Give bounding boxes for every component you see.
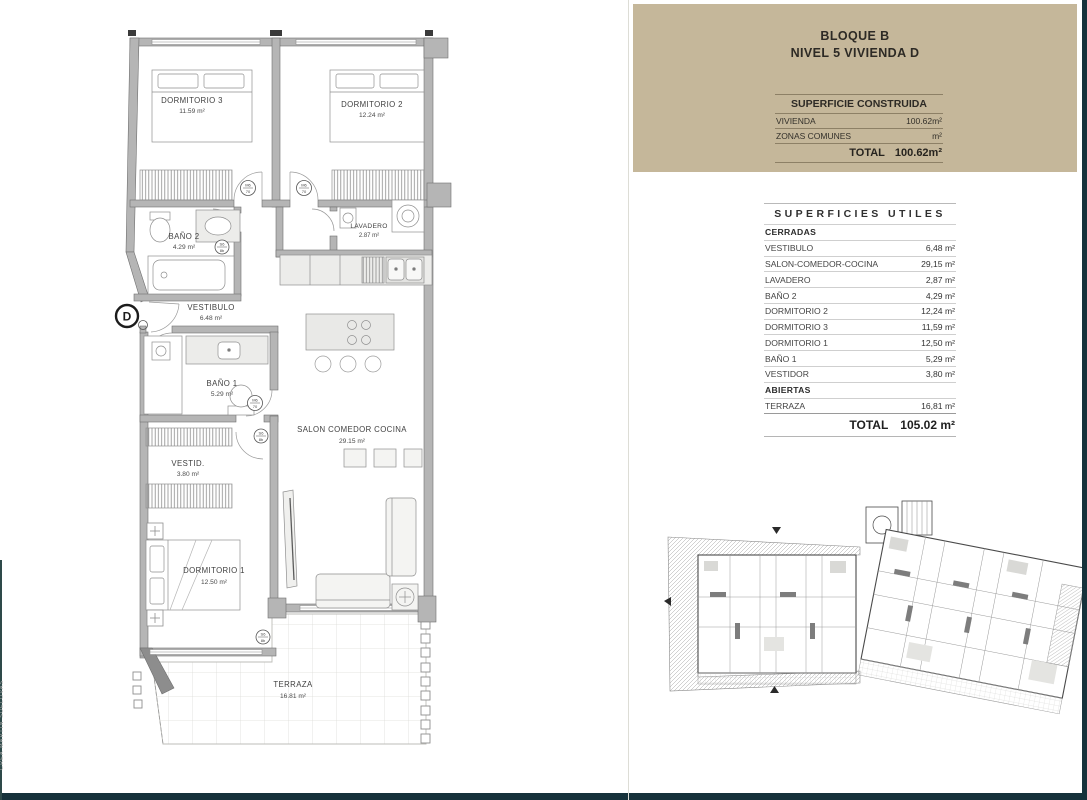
title-panel: BLOQUE B NIVEL 5 VIVIENDA D SUPERFICIE C… — [633, 4, 1077, 172]
room-area-bano1: 5.29 m² — [211, 391, 234, 398]
key-plan-left-building — [664, 527, 860, 693]
su-title: SUPERFICIES UTILES — [764, 203, 956, 224]
sc-row-value: 100.62m² — [906, 116, 942, 126]
door-tag: 70 — [253, 404, 258, 409]
room-area-dormitorio2: 12.24 m² — [359, 112, 386, 119]
key-plan — [660, 497, 1082, 725]
table-row: TERRAZA 16,81 m² — [764, 398, 956, 414]
su-total-value: 105.02 m² — [900, 418, 955, 432]
plan-title-line2: NIVEL 5 VIVIENDA D — [633, 45, 1077, 62]
su-row-label: BAÑO 2 — [765, 291, 797, 301]
room-label-terraza: TERRAZA — [273, 680, 313, 689]
su-row-value: 11,59 m² — [922, 322, 955, 332]
su-row-value: 2,87 m² — [926, 275, 955, 285]
superficies-utiles-table: SUPERFICIES UTILES CERRADAS VESTIBULO 6,… — [764, 203, 956, 437]
room-label-dormitorio1: DORMITORIO 1 — [183, 566, 245, 575]
kitchen-fixtures — [280, 255, 432, 372]
room-label-vestibulo: VESTIBULO — [187, 303, 234, 312]
su-section-heading: CERRADAS — [764, 224, 956, 240]
door-tag: 8b — [259, 437, 264, 442]
room-label-dormitorio3: DORMITORIO 3 — [161, 96, 223, 105]
room-label-dormitorio2: DORMITORIO 2 — [341, 100, 403, 109]
door-tag: 8b — [220, 248, 225, 253]
su-total-row: TOTAL 105.02 m² — [764, 413, 956, 437]
superficie-construida-table: SUPERFICIE CONSTRUIDA VIVIENDA 100.62m² … — [775, 94, 943, 163]
door-tag: 70 — [246, 189, 251, 194]
door-tag: 70 — [302, 189, 307, 194]
room-area-vestibulo: 6.48 m² — [200, 315, 223, 322]
entrance-label: D — [123, 310, 132, 324]
sc-row-value: m² — [932, 131, 942, 141]
door-tag: S6 — [220, 242, 226, 247]
room-area-lavadero: 2.87 m² — [359, 233, 379, 239]
room-area-terraza: 16.81 m² — [280, 693, 307, 700]
su-row-label: DORMITORIO 2 — [765, 306, 828, 316]
room-label-bano1: BAÑO 1 — [207, 379, 238, 388]
plan-title-line1: BLOQUE B — [633, 28, 1077, 45]
su-row-label: TERRAZA — [765, 401, 805, 411]
sc-row-label: ZONAS COMUNES — [776, 131, 851, 141]
room-label-salon: SALON COMEDOR COCINA — [297, 425, 407, 434]
room-area-dormitorio1: 12.50 m² — [201, 579, 228, 586]
bedroom3-furniture — [140, 70, 252, 200]
floor-plan: D M6 70 M6 70 M6 70 S6 8b S6 8b S6 8b DO… — [0, 0, 620, 800]
su-row-value: 4,29 m² — [926, 291, 955, 301]
bedroom2-furniture — [330, 70, 424, 200]
table-row: DORMITORIO 3 11,59 m² — [764, 319, 956, 335]
su-total-label: TOTAL — [849, 418, 888, 432]
su-heading-label: ABIERTAS — [765, 385, 811, 395]
table-row: DORMITORIO 1 12,50 m² — [764, 334, 956, 350]
living-room-furniture — [283, 449, 422, 610]
table-row: SALON-COMEDOR-COCINA 29,15 m² — [764, 256, 956, 272]
door-tag: 8b — [261, 638, 266, 643]
door-tag: M6 — [252, 398, 258, 403]
su-row-value: 29,15 m² — [921, 259, 955, 269]
su-row-value: 5,29 m² — [926, 354, 955, 364]
door-tag: M6 — [245, 183, 251, 188]
wardrobe-fixtures — [146, 428, 232, 508]
door-tag: S6 — [261, 632, 267, 637]
room-area-bano2: 4.29 m² — [173, 244, 196, 251]
sc-title: SUPERFICIE CONSTRUIDA — [775, 94, 943, 114]
sc-total-value: 100.62m² — [895, 147, 942, 159]
su-section-heading: ABIERTAS — [764, 382, 956, 398]
room-area-vestidor: 3.80 m² — [177, 471, 200, 478]
su-heading-label: CERRADAS — [765, 227, 816, 237]
door-tag: S6 — [259, 431, 265, 436]
sc-row-label: VIVIENDA — [776, 116, 816, 126]
table-row: VESTIDOR 3,80 m² — [764, 366, 956, 382]
key-plan-right-building — [858, 529, 1082, 713]
bedroom1-furniture — [146, 540, 240, 610]
page-border-right — [1082, 0, 1087, 800]
terrace-area — [152, 614, 426, 744]
table-row: DORMITORIO 2 12,24 m² — [764, 303, 956, 319]
page-divider-line — [628, 0, 629, 800]
su-row-label: BAÑO 1 — [765, 354, 797, 364]
room-area-salon: 29.15 m² — [339, 438, 366, 445]
dimension-ticks — [128, 30, 433, 36]
su-row-value: 12,50 m² — [921, 338, 955, 348]
su-row-value: 6,48 m² — [926, 243, 955, 253]
plan-title: BLOQUE B NIVEL 5 VIVIENDA D — [633, 28, 1077, 62]
room-label-lavadero: LAVADERO — [350, 223, 387, 230]
room-label-bano2: BAÑO 2 — [169, 232, 200, 241]
su-row-label: DORMITORIO 3 — [765, 322, 828, 332]
table-row: VIVIENDA 100.62m² — [775, 114, 943, 129]
su-row-label: VESTIBULO — [765, 243, 813, 253]
door-tag: M6 — [301, 183, 307, 188]
su-row-label: LAVADERO — [765, 275, 811, 285]
su-row-label: VESTIDOR — [765, 369, 809, 379]
room-area-dormitorio3: 11.59 m² — [179, 108, 205, 115]
table-row: ZONAS COMUNES m² — [775, 129, 943, 144]
su-row-label: SALON-COMEDOR-COCINA — [765, 259, 878, 269]
table-row: BAÑO 1 5,29 m² — [764, 350, 956, 366]
table-row: VESTIBULO 6,48 m² — [764, 240, 956, 256]
table-row: LAVADERO 2,87 m² — [764, 271, 956, 287]
su-row-label: DORMITORIO 1 — [765, 338, 828, 348]
su-row-value: 3,80 m² — [926, 369, 955, 379]
sc-total-row: TOTAL 100.62m² — [775, 144, 943, 163]
su-row-value: 12,24 m² — [921, 306, 955, 316]
room-label-vestidor: VESTID. — [171, 459, 204, 468]
sc-total-label: TOTAL — [849, 147, 885, 159]
table-row: BAÑO 2 4,29 m² — [764, 287, 956, 303]
su-row-value: 16,81 m² — [921, 401, 955, 411]
